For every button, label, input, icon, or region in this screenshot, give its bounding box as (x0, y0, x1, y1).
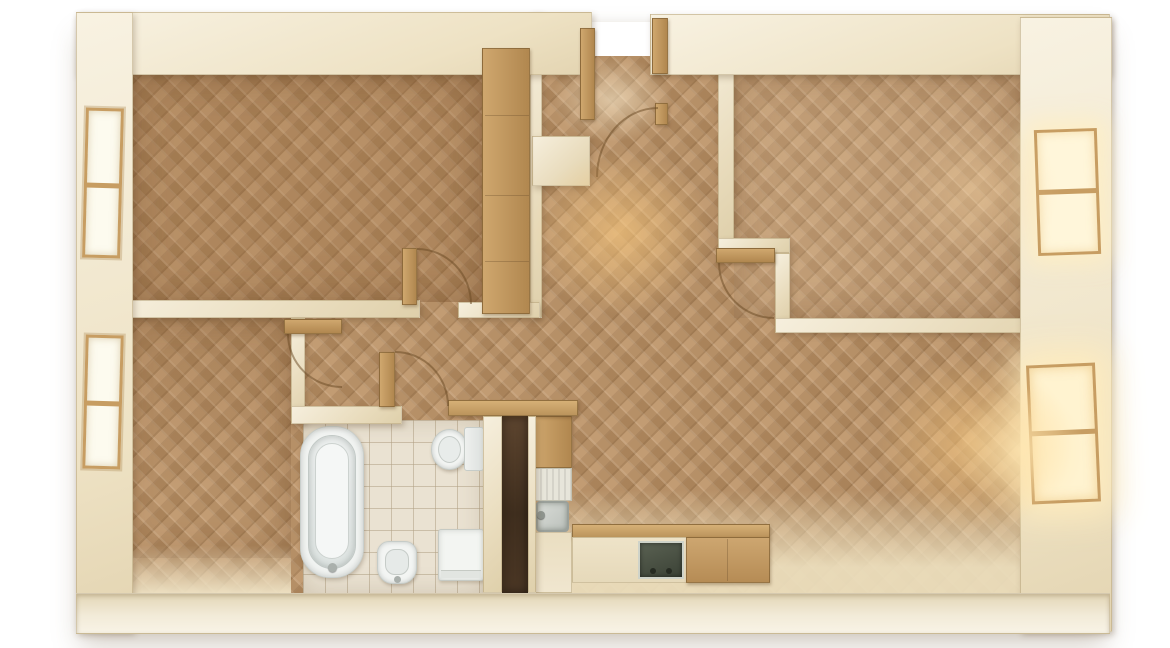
counter-backsplash (572, 524, 770, 538)
bidet-basin (385, 549, 409, 575)
right-wall (1020, 17, 1112, 632)
cooktop (638, 541, 684, 579)
toilet-seat (438, 436, 461, 463)
window-right-bottom (1026, 363, 1101, 505)
window-pane-divider (86, 401, 120, 407)
bathtub-basin-inner (315, 443, 349, 559)
cooktop-knob-icon (650, 568, 656, 574)
left-wall (76, 12, 133, 632)
vestibule-stub-wall (532, 136, 590, 186)
floor-plan-render (0, 0, 1170, 648)
window-pane-divider (86, 183, 120, 189)
bedroom1-bottom-wall (118, 300, 420, 318)
bidet (377, 541, 417, 584)
wardrobe-seam (485, 195, 529, 196)
toilet (431, 429, 468, 470)
cabinet-seam (727, 539, 728, 581)
sink-faucet-icon (537, 511, 545, 519)
washing-machine-front (441, 570, 481, 578)
sink-counter-front (530, 532, 572, 593)
bidet-faucet-icon (394, 576, 401, 583)
door-room-top-right (716, 248, 775, 263)
door-bathroom (379, 352, 395, 407)
bathroom-top-wall-wood-cap (448, 400, 578, 416)
storage-niche (502, 416, 528, 593)
sink-drainboard (533, 468, 572, 501)
cooktop-knob-icon (666, 568, 672, 574)
bathroom-right-wall (483, 416, 502, 593)
room-top-right-jog-wall-vertical (775, 253, 790, 319)
window-left-bottom (82, 335, 123, 470)
wardrobe-seam (485, 115, 529, 116)
bathtub-faucet-icon (328, 563, 337, 572)
wardrobe (482, 48, 530, 314)
entry-door-left (580, 28, 595, 120)
window-pane-divider (1031, 429, 1096, 437)
window-right-top (1034, 128, 1101, 256)
bathtub (300, 426, 364, 578)
toilet-tank (464, 427, 484, 471)
niche-right-wall (528, 416, 536, 593)
door-bedroom-top-left (402, 248, 417, 305)
door-bedroom-bottom-left (284, 319, 342, 334)
washing-machine (438, 529, 484, 581)
entry-door-right (652, 18, 668, 74)
bottom-wall (76, 593, 1110, 634)
sink-counter-cabinet (534, 416, 572, 468)
wardrobe-seam (485, 261, 529, 262)
bathroom-top-wall (291, 406, 402, 424)
window-left-top (82, 108, 124, 259)
window-pane-divider (1038, 188, 1097, 195)
kitchen-cabinet (686, 537, 770, 583)
